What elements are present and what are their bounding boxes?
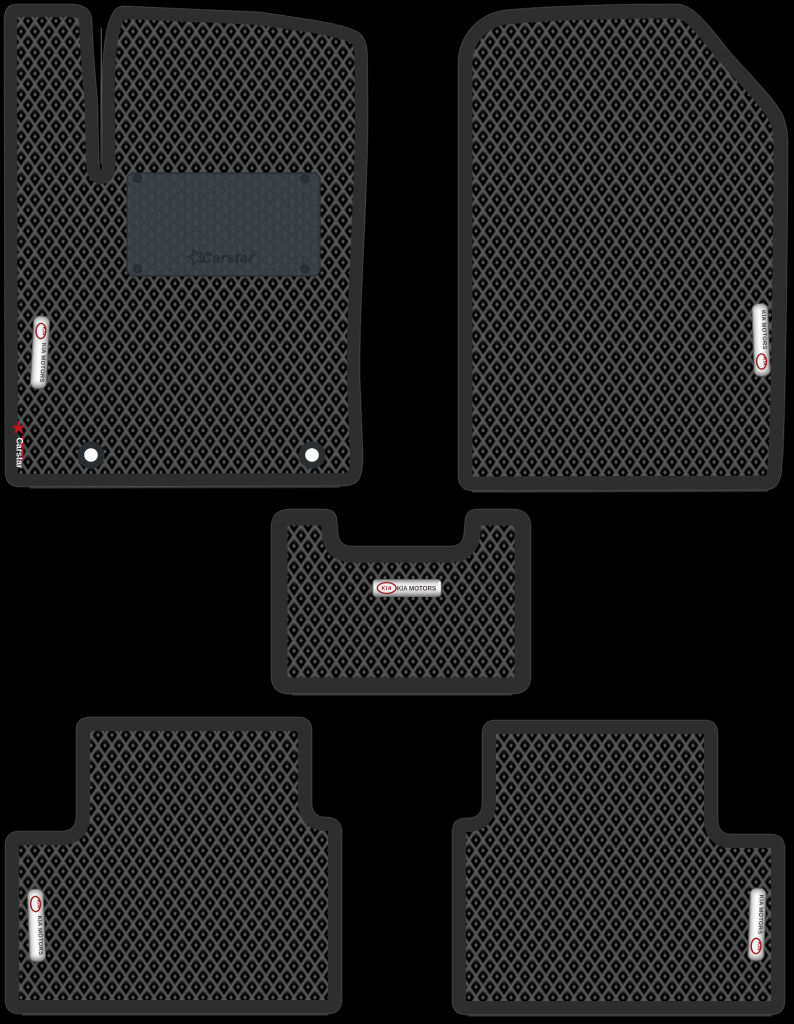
svg-text:Carstar: Carstar [202,249,255,265]
svg-text:Carstar: Carstar [15,438,25,469]
